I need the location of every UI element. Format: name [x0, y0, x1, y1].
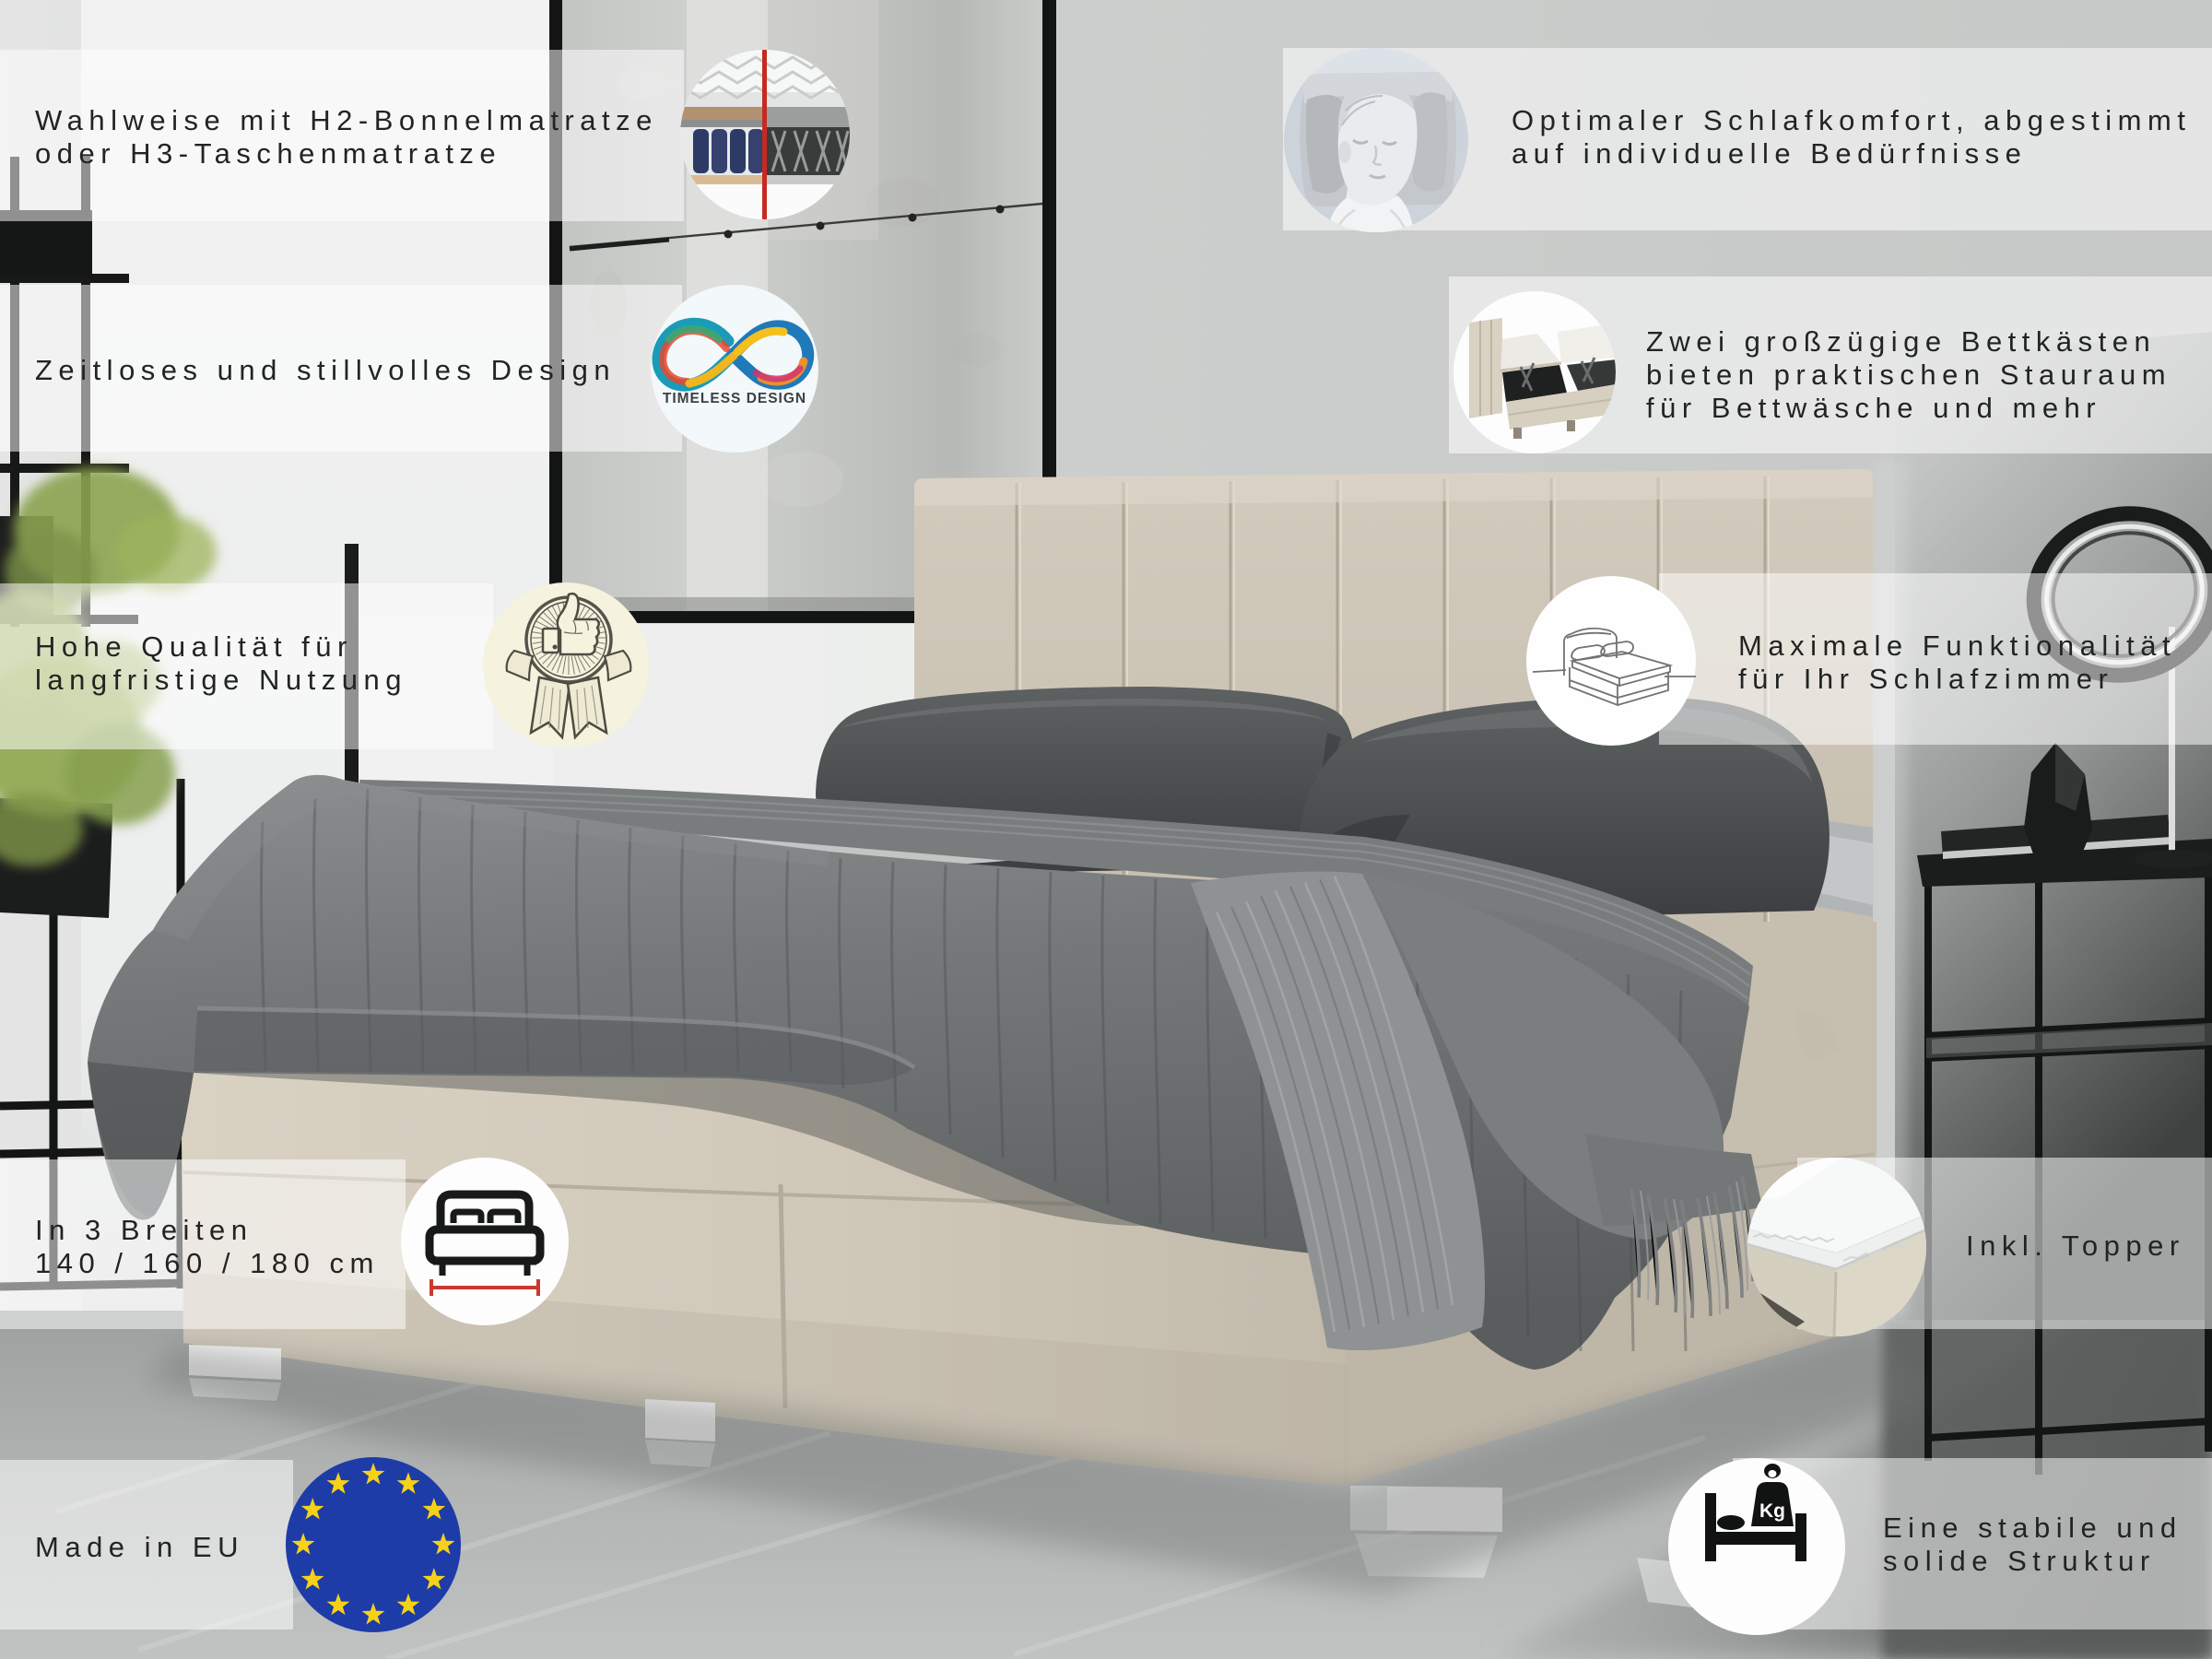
svg-text:Made in EU: Made in EU: [35, 1531, 244, 1563]
svg-text:für Bettwäsche und mehr: für Bettwäsche und mehr: [1646, 392, 2101, 424]
svg-text:für Ihr Schlafzimmer: für Ihr Schlafzimmer: [1738, 663, 2113, 695]
svg-text:In 3 Breiten: In 3 Breiten: [35, 1214, 253, 1246]
svg-text:Kg: Kg: [1759, 1500, 1785, 1522]
svg-text:Hohe Qualität für: Hohe Qualität für: [35, 630, 353, 663]
svg-text:auf individuelle Bedürfnisse: auf individuelle Bedürfnisse: [1512, 137, 2027, 170]
svg-text:bieten praktischen Stauraum: bieten praktischen Stauraum: [1646, 359, 2171, 391]
svg-text:Zeitloses und stillvolles Desi: Zeitloses und stillvolles Design: [35, 354, 616, 386]
svg-text:TIMELESS DESIGN: TIMELESS DESIGN: [663, 391, 806, 406]
svg-text:Zwei großzügige Bettkästen: Zwei großzügige Bettkästen: [1646, 325, 2156, 358]
svg-text:140 / 160 / 180 cm: 140 / 160 / 180 cm: [35, 1247, 380, 1279]
svg-text:Inkl. Topper: Inkl. Topper: [1966, 1230, 2185, 1262]
svg-text:Optimaler Schlafkomfort, abges: Optimaler Schlafkomfort, abgestimmt: [1512, 104, 2191, 136]
svg-text:Wahlweise mit H2-Bonnelmatratz: Wahlweise mit H2-Bonnelmatratze: [35, 104, 658, 136]
svg-text:Maximale Funktionalität: Maximale Funktionalität: [1738, 629, 2176, 662]
svg-text:solide Struktur: solide Struktur: [1883, 1545, 2156, 1577]
svg-text:langfristige Nutzung: langfristige Nutzung: [35, 664, 407, 696]
svg-text:oder H3-Taschenmatratze: oder H3-Taschenmatratze: [35, 137, 501, 170]
svg-text:Eine stabile und: Eine stabile und: [1883, 1512, 2183, 1544]
